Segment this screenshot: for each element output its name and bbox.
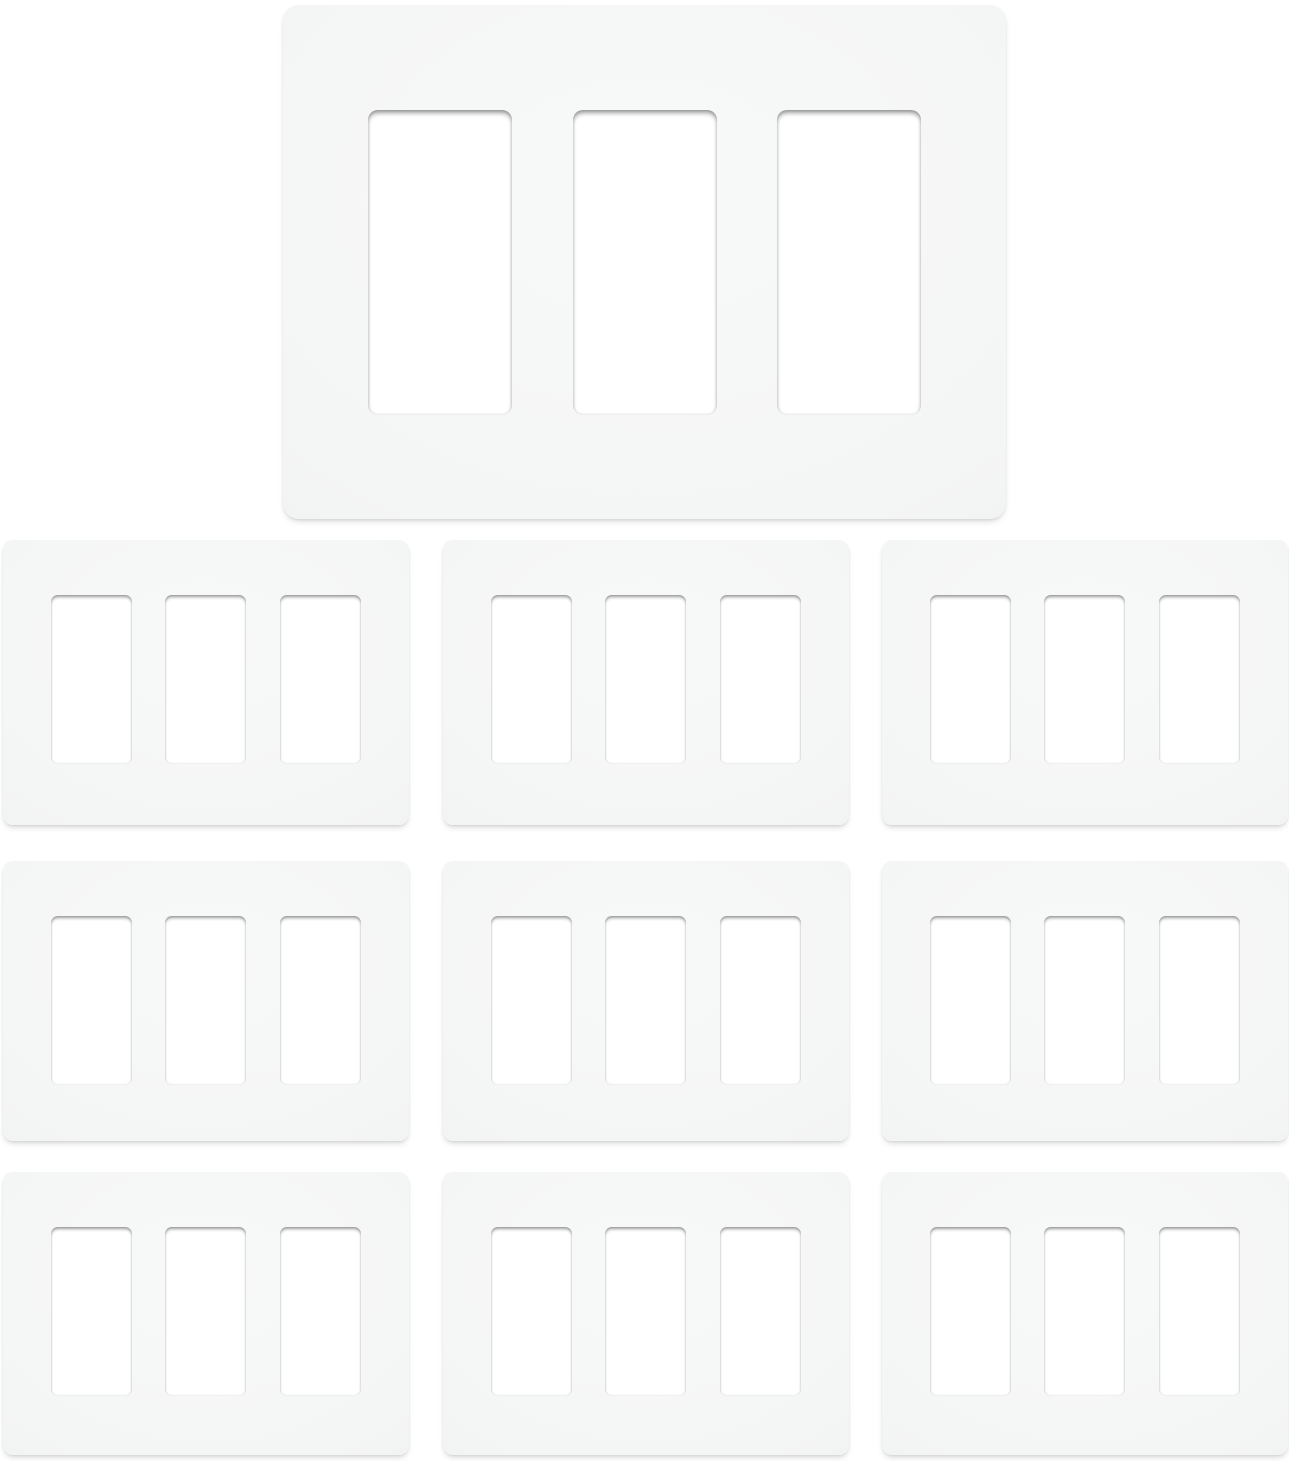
wall-plate <box>882 540 1288 825</box>
gang-opening <box>720 916 801 1085</box>
gang-opening <box>930 1227 1011 1396</box>
gang-opening <box>605 595 686 764</box>
wall-plate <box>3 1172 409 1455</box>
product-photo <box>0 0 1289 1461</box>
gang-opening <box>280 595 361 764</box>
wall-plate <box>882 861 1288 1141</box>
gang-opening <box>165 1227 246 1396</box>
wall-plate <box>3 540 409 825</box>
gang-opening <box>491 916 572 1085</box>
gang-opening <box>165 595 246 764</box>
gang-opening <box>605 916 686 1085</box>
wall-plate <box>3 861 409 1141</box>
gang-opening <box>280 916 361 1085</box>
gang-opening <box>51 595 132 764</box>
gang-opening <box>1044 1227 1125 1396</box>
gang-opening <box>1044 916 1125 1085</box>
gang-opening <box>1159 916 1240 1085</box>
gang-opening <box>1159 1227 1240 1396</box>
gang-opening <box>280 1227 361 1396</box>
gang-opening <box>720 1227 801 1396</box>
gang-opening <box>930 595 1011 764</box>
wall-plate <box>443 861 849 1141</box>
gang-opening <box>51 1227 132 1396</box>
gang-opening <box>1044 595 1125 764</box>
gang-opening <box>491 595 572 764</box>
gang-opening <box>930 916 1011 1085</box>
gang-opening <box>51 916 132 1085</box>
gang-opening <box>165 916 246 1085</box>
gang-opening <box>368 110 512 415</box>
wall-plate <box>443 540 849 825</box>
gang-opening <box>777 110 921 415</box>
wall-plate <box>443 1172 849 1455</box>
gang-opening <box>573 110 717 415</box>
wall-plate <box>882 1172 1288 1455</box>
gang-opening <box>720 595 801 764</box>
gang-opening <box>605 1227 686 1396</box>
gang-opening <box>1159 595 1240 764</box>
wall-plate-hero <box>283 5 1006 519</box>
gang-opening <box>491 1227 572 1396</box>
